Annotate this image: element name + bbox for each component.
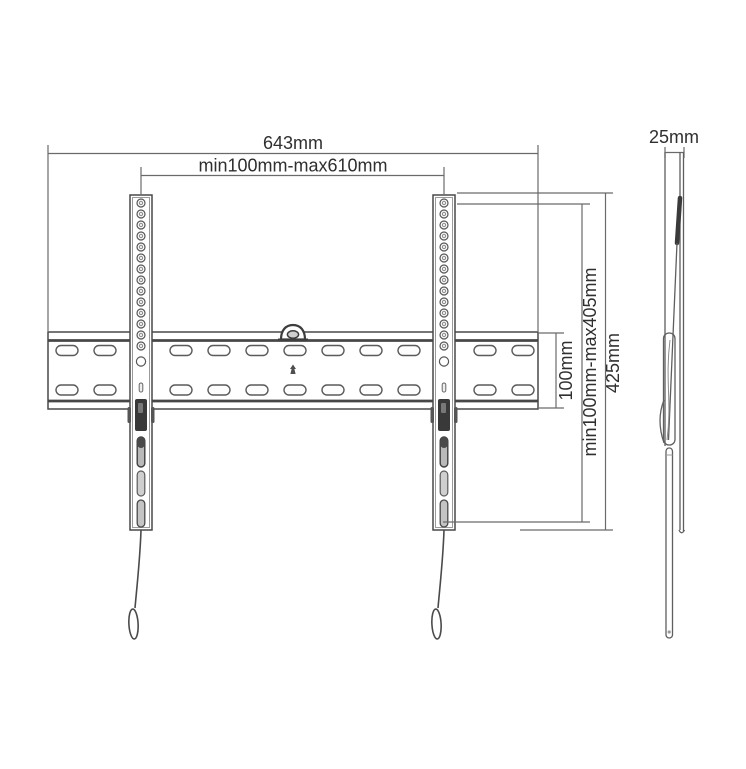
horizontal-adjustment-label: min100mm-max610mm (198, 156, 387, 176)
right-rail (431, 195, 458, 639)
dimension-horizontal-adjustment: min100mm-max610mm (141, 156, 444, 195)
safety-hook (278, 325, 308, 340)
side-view: 25mm (649, 127, 699, 638)
diagram-canvas: 643mm min100mm-max610mm (0, 0, 746, 769)
vertical-adjustment-label: min100mm-max405mm (580, 267, 600, 456)
plate-height-label: 100mm (556, 340, 576, 400)
rail-height-label: 425mm (603, 333, 623, 393)
total-width-label: 643mm (263, 133, 323, 153)
left-rail (128, 195, 155, 639)
mount-dimension-diagram: 643mm min100mm-max610mm (0, 0, 746, 769)
depth-label: 25mm (649, 127, 699, 147)
dimension-depth: 25mm (649, 127, 699, 158)
dimension-plate-height: 100mm (539, 333, 576, 408)
wall-plate (48, 332, 538, 409)
